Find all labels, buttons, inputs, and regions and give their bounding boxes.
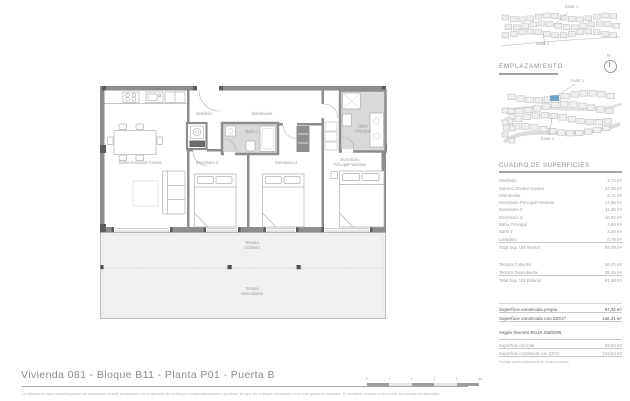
table-row: Superficie construida con ZZCC*146,31 m²: [499, 312, 622, 321]
compass-icon: [604, 60, 617, 73]
exterior-rows: Terraza Cubierta26,43 m²Terraza Descubie…: [499, 260, 622, 275]
table-row: Baño Principal4,69 m²: [499, 220, 622, 227]
scale-segment: [367, 383, 389, 387]
column: [101, 265, 104, 269]
scale-segment: [389, 383, 411, 387]
table-row: Superficie útil total93,83 m²: [499, 339, 622, 348]
dining-set: [108, 124, 163, 161]
washing-machine: [191, 126, 204, 139]
table-row: Dormitorio Principal+Vestidor17,55 m²: [499, 198, 622, 205]
table-row: Distribuidor5,72 m²: [499, 191, 622, 198]
stove: [123, 92, 139, 103]
table-row: Terraza Cubierta26,43 m²: [499, 260, 622, 267]
svg-text:Principal+Vestidor: Principal+Vestidor: [334, 162, 368, 167]
vestidor-shelves: [325, 122, 337, 150]
kitchen-counter: [105, 92, 188, 104]
north-label: N: [607, 53, 610, 58]
scale-label: 5m: [478, 377, 482, 381]
table-row: Total Sup. Útil Interior84,09 m²: [499, 242, 622, 251]
svg-text:Descubierta: Descubierta: [241, 291, 264, 296]
sofa: [163, 171, 186, 214]
fase2-label-siteplan: FASE 2: [541, 137, 554, 141]
site-plan-sketch: [498, 78, 625, 150]
heading-underline: [499, 171, 622, 173]
highlighted-block: [550, 96, 559, 102]
toilet: [246, 141, 255, 151]
table-row: Superficie construida propia97,34 m²: [499, 303, 622, 312]
scale-segment: [412, 383, 434, 387]
column: [228, 265, 232, 269]
table-row: Terraza Descubierta35,25 m²: [499, 267, 622, 274]
compass-needle: [609, 62, 610, 67]
scale-label: 1: [388, 377, 390, 381]
built-surface-rows: Superficie construida propia97,34 m²Supe…: [499, 303, 622, 322]
decreto-rows: Superficie útil total93,83 m²Superficie …: [499, 339, 622, 357]
scale-label: 0: [366, 377, 368, 381]
svg-text:Cubierta: Cubierta: [244, 245, 260, 250]
fase1-label-elevation: FASE 1: [565, 5, 578, 9]
scale-bar: 012345m: [367, 378, 479, 387]
toilet: [343, 114, 352, 126]
scale-label: 4: [456, 377, 458, 381]
label-vestibulo: Vestíbulo: [196, 111, 214, 116]
page-title: Vivienda 081 - Bloque B11 - Planta P01 -…: [21, 369, 275, 381]
scale-label: 3: [433, 377, 435, 381]
label-salon: Salón-Comedor-Cocina: [119, 160, 162, 165]
label-dorm3: Dormitorio 3: [196, 160, 219, 165]
decreto-header: Según Decreto BOJA 218/2005: [499, 330, 622, 337]
interior-rows: Vestíbulo2,74 m²Salón-Comedor-Cocina27,0…: [499, 176, 622, 242]
label-distribuidor: Distribuidor: [252, 111, 273, 116]
table-footnote: *Incluye parte proporcional de zonas com…: [499, 360, 622, 364]
cuadro-heading: CUADRO DE SUPERFICIES: [499, 162, 590, 169]
table-row: Total Sup. Útil Exterior61,68 m²: [499, 275, 622, 284]
entry-door-arc: [199, 91, 220, 112]
terrace: [101, 233, 386, 319]
interior-total-row: Total Sup. Útil Interior84,09 m²: [499, 242, 622, 251]
table-row: Dormitorio 310,92 m²: [499, 212, 622, 219]
site-elevation-sketch: [498, 6, 625, 50]
scale-segment: [457, 383, 479, 387]
nightstand: [331, 172, 338, 179]
rug: [133, 181, 158, 206]
exterior-total-row: Total Sup. Útil Exterior61,68 m²: [499, 275, 622, 284]
bed-dorm2: [263, 174, 305, 227]
table-row: Vestíbulo2,74 m²: [499, 176, 622, 183]
emplazamiento-heading: EMPLAZAMIENTO: [499, 64, 563, 70]
disclaimer-text: La información aquí contenida puede ser …: [22, 392, 618, 396]
heading-underline: [499, 73, 558, 75]
fase2-label-elevation: FASE 2: [536, 42, 549, 46]
surfaces-table: Vestíbulo2,74 m²Salón-Comedor-Cocina27,0…: [499, 176, 622, 364]
wardrobe-dorm2: [297, 126, 310, 152]
bathroom-principal: [340, 91, 386, 153]
bathroom-2: [222, 123, 278, 156]
column: [297, 265, 301, 269]
scale-label: 2: [411, 377, 413, 381]
table-row: Baño 23,39 m²: [499, 227, 622, 234]
label-dorm2: Dormitorio 2: [275, 160, 298, 165]
table-row: Salón-Comedor-Cocina27,06 m²: [499, 183, 622, 190]
floor-plan-sheet: { "document": { "title": "Vivienda 081 -…: [0, 0, 630, 401]
bed-principal: [331, 171, 384, 227]
table-row: Dormitorio 211,85 m²: [499, 205, 622, 212]
scale-segment: [434, 383, 456, 387]
floor-plan: Vestíbulo Distribuidor Salón-Comedor-Coc…: [100, 86, 388, 320]
laundry-closet: [187, 123, 207, 149]
floor-plan-area: Vestíbulo Distribuidor Salón-Comedor-Coc…: [100, 86, 388, 320]
label-bano2: Baño 2: [246, 129, 260, 134]
svg-text:Principal: Principal: [355, 129, 371, 134]
fase1-label-siteplan: FASE 1: [571, 79, 584, 83]
table-row: Lavadero0,79 m²: [499, 234, 622, 241]
table-row: Superficie construida con ZZCC153,54 m²: [499, 348, 622, 357]
bed-dorm3: [195, 174, 237, 227]
sink: [226, 126, 236, 136]
